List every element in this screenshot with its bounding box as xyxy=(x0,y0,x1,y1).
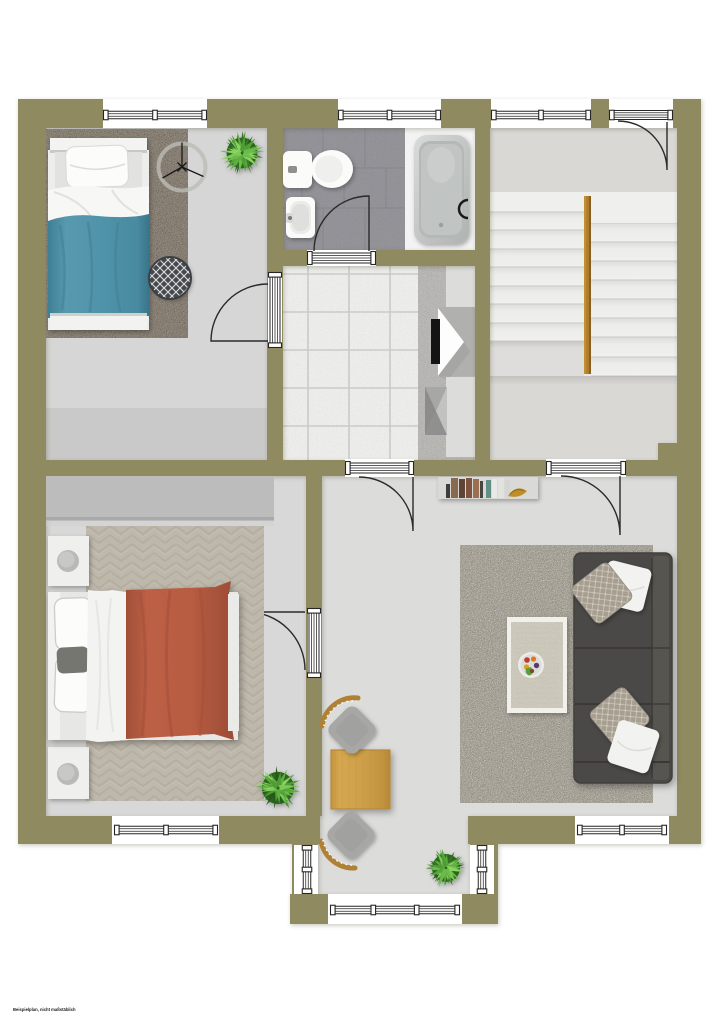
svg-text:Beispielplan, nicht maßstäblic: Beispielplan, nicht maßstäblich xyxy=(13,1007,76,1012)
